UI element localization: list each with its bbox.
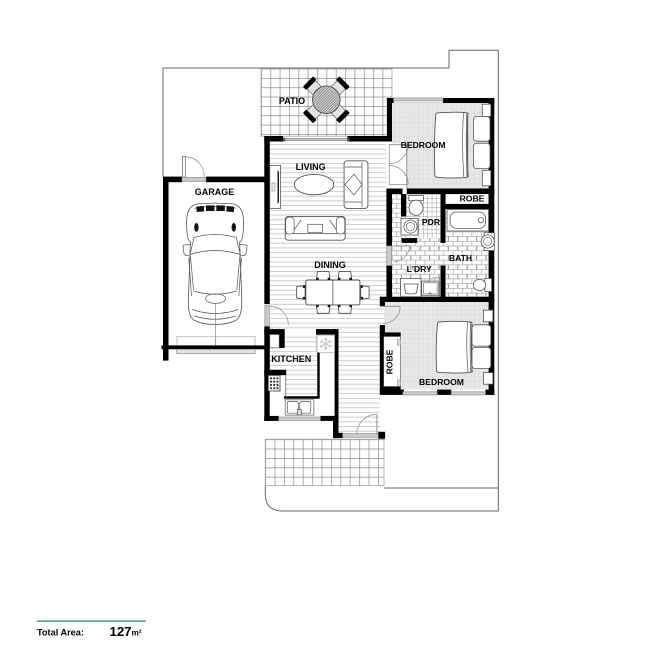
svg-text:DINING: DINING bbox=[314, 260, 346, 270]
svg-text:BATH: BATH bbox=[449, 253, 472, 263]
svg-text:KITCHEN: KITCHEN bbox=[271, 354, 311, 364]
svg-text:127: 127 bbox=[110, 624, 132, 639]
svg-text:LIVING: LIVING bbox=[296, 162, 326, 172]
svg-text:L'DRY: L'DRY bbox=[407, 264, 432, 274]
svg-text:PDR: PDR bbox=[422, 217, 441, 227]
svg-text:m²: m² bbox=[132, 629, 142, 638]
svg-text:ROBE: ROBE bbox=[384, 349, 394, 374]
svg-text:PATIO: PATIO bbox=[279, 96, 305, 106]
svg-text:Total Area:: Total Area: bbox=[37, 628, 84, 638]
svg-text:BEDROOM: BEDROOM bbox=[419, 377, 464, 387]
svg-text:ROBE: ROBE bbox=[460, 194, 485, 204]
svg-text:BEDROOM: BEDROOM bbox=[401, 140, 446, 150]
svg-text:GARAGE: GARAGE bbox=[195, 187, 235, 197]
